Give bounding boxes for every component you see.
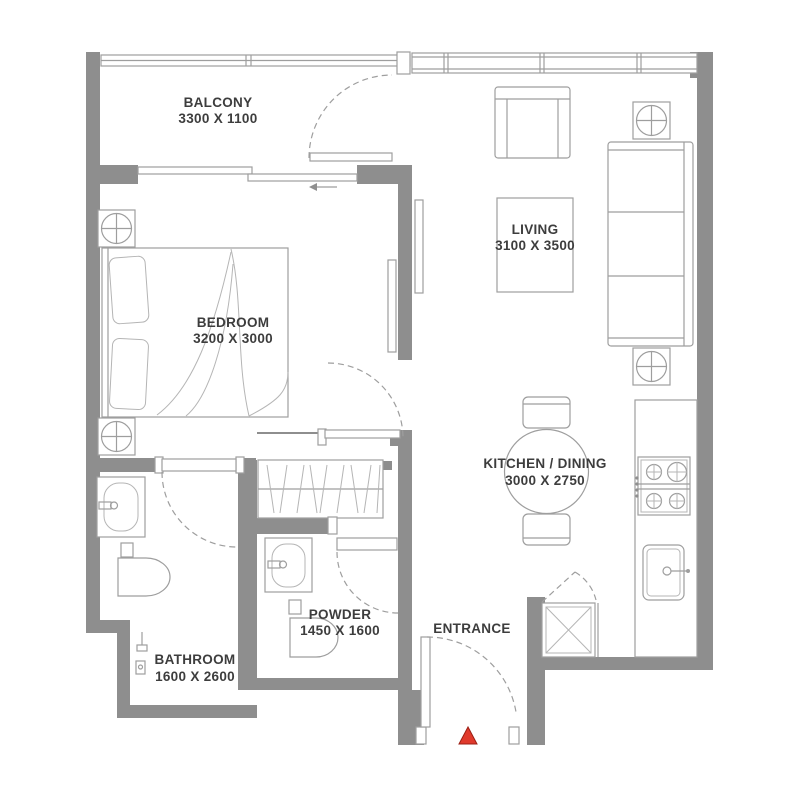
entrance-label: ENTRANCE xyxy=(433,621,510,636)
living-label: LIVING xyxy=(512,222,559,237)
door-leaf xyxy=(310,153,392,161)
door-leaf xyxy=(421,637,430,727)
ac-symbol-icon xyxy=(633,348,670,385)
dining-set xyxy=(505,397,589,545)
kitchen-sink-icon xyxy=(643,545,690,600)
dining-chair xyxy=(523,514,570,545)
powder-dims: 1450 X 1600 xyxy=(300,623,380,638)
balcony-partition xyxy=(397,52,410,74)
kitchen-counter xyxy=(635,400,697,657)
balcony-dims: 3300 X 1100 xyxy=(178,111,257,126)
bathroom-sink-icon xyxy=(97,477,145,537)
room-powder: POWDER 1450 X 1600 xyxy=(265,517,398,657)
door-jamb xyxy=(509,727,519,744)
sliding-door-icon xyxy=(138,167,357,191)
ac-symbol-icon xyxy=(98,210,135,247)
door-leaf xyxy=(162,459,236,471)
sliding-door-arrow-icon xyxy=(309,183,317,191)
room-balcony: BALCONY 3300 X 1100 xyxy=(101,52,410,161)
floor-plan-page: BALCONY 3300 X 1100 xyxy=(0,0,800,800)
toilet-icon xyxy=(118,543,170,596)
floor-plan-drawing: BALCONY 3300 X 1100 xyxy=(0,0,800,800)
kitchen-dining-dims: 3000 X 2750 xyxy=(505,473,585,488)
armchair xyxy=(495,87,570,158)
door-leaf xyxy=(325,430,400,438)
bedroom-door xyxy=(318,363,403,445)
dining-table xyxy=(505,430,589,514)
washer-icon xyxy=(542,572,598,657)
balcony-door xyxy=(309,75,392,161)
stove-icon xyxy=(635,457,690,515)
room-bedroom: BEDROOM 3200 X 3000 xyxy=(98,167,423,455)
bathroom-dims: 1600 X 2600 xyxy=(155,669,235,684)
door-swing-icon xyxy=(309,75,392,158)
powder-label: POWDER xyxy=(309,607,372,622)
bedroom-label: BEDROOM xyxy=(197,315,270,330)
dining-chair xyxy=(523,397,570,428)
ac-symbol-icon xyxy=(98,418,135,455)
room-living: LIVING 3100 X 3500 xyxy=(412,53,697,385)
entry-marker-icon xyxy=(459,727,477,744)
closet-door-swing-icon xyxy=(542,572,575,602)
bedroom-dims: 3200 X 3000 xyxy=(193,331,273,346)
bathroom-door xyxy=(155,457,244,547)
door-swing-icon xyxy=(427,637,516,712)
door-leaf xyxy=(337,538,397,550)
living-dims: 3100 X 3500 xyxy=(495,238,575,253)
powder-door xyxy=(328,517,398,613)
door-jamb xyxy=(328,517,337,534)
kitchen-dining-label: KITCHEN / DINING xyxy=(483,456,606,471)
bathroom-label: BATHROOM xyxy=(155,652,236,667)
shower-icon xyxy=(136,632,147,674)
door-swing-icon xyxy=(337,552,398,613)
balcony-label: BALCONY xyxy=(184,95,253,110)
balcony-railing-icon xyxy=(101,55,410,66)
sofa xyxy=(608,142,693,346)
window-band-icon xyxy=(412,53,697,73)
door-jamb xyxy=(236,457,244,473)
door-swing-icon xyxy=(162,472,237,547)
door-swing-icon xyxy=(328,363,403,438)
powder-sink-icon xyxy=(265,538,312,592)
wardrobe-icon xyxy=(258,460,383,518)
ac-symbol-icon xyxy=(633,102,670,139)
door-jamb xyxy=(416,727,426,744)
